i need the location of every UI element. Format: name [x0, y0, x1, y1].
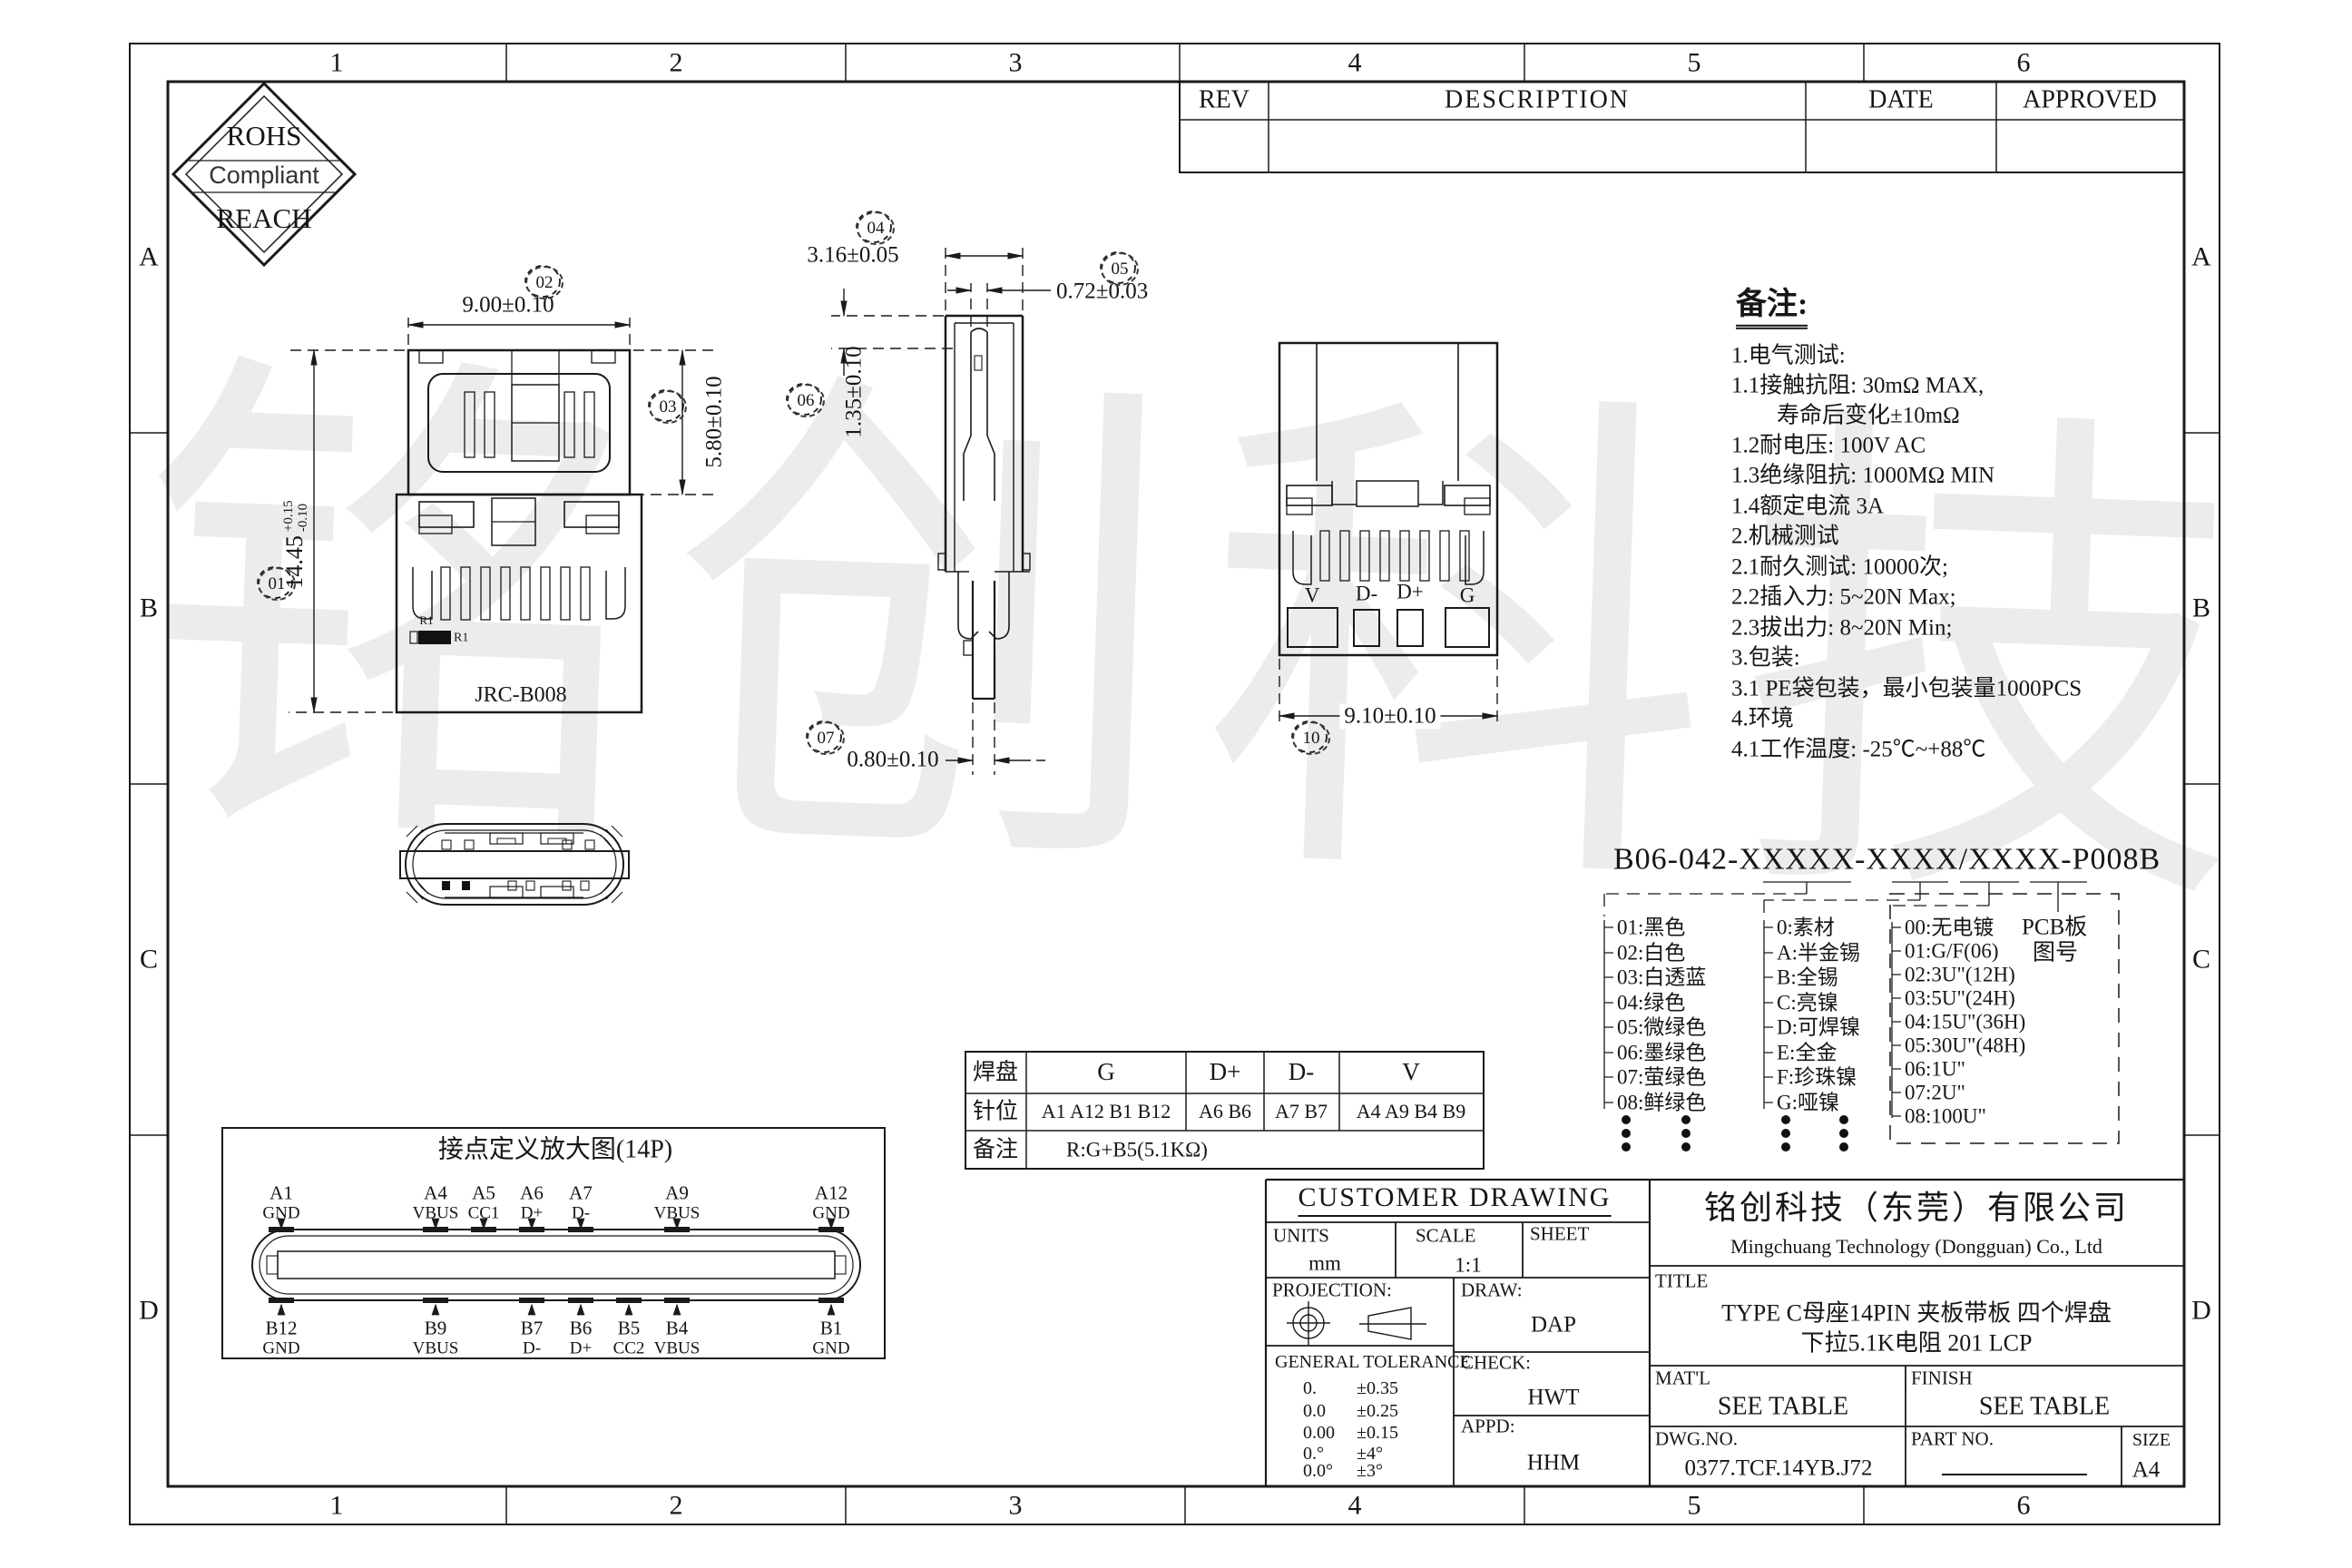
- pin-id: B4: [666, 1318, 689, 1338]
- pad-table-dplus: D+: [1210, 1059, 1241, 1086]
- note-line: 寿命后变化±10mΩ: [1777, 403, 1960, 428]
- rohs-reach-label: REACH: [216, 203, 311, 234]
- balloon-01: 01: [258, 567, 296, 601]
- tolerance-value: 0.0°: [1303, 1461, 1333, 1481]
- border-col-4-bottom: 4: [1348, 1491, 1362, 1521]
- pad-d-minus: [1354, 610, 1379, 646]
- border-col-4-top: 4: [1348, 48, 1362, 78]
- balloon-05: 05: [1101, 252, 1139, 286]
- tolerance-tol: ±0.25: [1357, 1401, 1398, 1421]
- plating-option: F:珍珠镍: [1777, 1065, 1857, 1088]
- approved-header: APPROVED: [2023, 87, 2157, 115]
- pad-label-d-minus: D-: [1356, 582, 1377, 604]
- note-line: 2.3拔出力: 8~20N Min;: [1731, 615, 1952, 641]
- pin-id: B12: [265, 1318, 297, 1338]
- customer-drawing-heading: CUSTOMER DRAWING: [1298, 1182, 1612, 1217]
- projection-label: PROJECTION:: [1272, 1279, 1392, 1300]
- border-col-5-top: 5: [1688, 48, 1701, 78]
- thickness-option: 03:5U"(24H): [1905, 986, 2015, 1009]
- thickness-option: 07:2U": [1905, 1081, 1965, 1103]
- pad-table-g-pins: A1 A12 B1 B12: [1042, 1101, 1171, 1122]
- dim-front-shell: 5.80±0.10: [701, 376, 727, 467]
- pad-table-row3-head: 备注: [973, 1137, 1018, 1162]
- pad-label-v: V: [1305, 583, 1320, 606]
- pin-id: A9: [665, 1182, 689, 1203]
- title-line1: TYPE C母座14PIN 夹板带板 四个焊盘: [1721, 1301, 2112, 1328]
- color-option: 08:鲜绿色: [1617, 1091, 1706, 1113]
- pin-sig: VBUS: [413, 1340, 459, 1359]
- size-label: SIZE: [2132, 1430, 2171, 1450]
- note-line: 4.1工作温度: -25℃~+88℃: [1731, 737, 1985, 762]
- balloon-07: 07: [807, 721, 845, 755]
- note-line: 3.包装:: [1731, 645, 1800, 671]
- tolerance-value: 0.: [1303, 1378, 1317, 1398]
- pcb-label-line2: 图号: [2033, 940, 2078, 965]
- pin-sig: VBUS: [654, 1205, 701, 1224]
- check-label: CHECK:: [1461, 1352, 1531, 1373]
- dim-back-width: 9.10±0.10: [1339, 703, 1440, 729]
- note-line: 2.2插入力: 5~20N Max;: [1731, 584, 1956, 610]
- balloon-circles: [258, 211, 1327, 752]
- pin-sig: GND: [262, 1340, 299, 1359]
- border-row-b-left: B: [140, 593, 158, 623]
- pin-id: A7: [569, 1182, 593, 1203]
- part-number-code: B06-042-XXXXX-XXXX/XXXX-P008B: [1613, 842, 2161, 876]
- plating-option: G:哑镍: [1777, 1091, 1839, 1113]
- company-name-cn: 铭创科技（东莞）有限公司: [1704, 1191, 2129, 1227]
- plating-option: C:亮镍: [1777, 991, 1838, 1014]
- color-option: 01:黑色: [1617, 916, 1685, 938]
- border-col-1-bottom: 1: [330, 1491, 344, 1521]
- pin-id: A5: [472, 1182, 495, 1203]
- pin-sig: D+: [521, 1205, 543, 1224]
- pad-table-row2-head: 针位: [973, 1099, 1018, 1124]
- date-header: DATE: [1868, 87, 1934, 115]
- pin-sig: D-: [523, 1340, 541, 1359]
- border-col-2-top: 2: [670, 48, 683, 78]
- dim-front-height-plus: +0.15: [282, 500, 297, 532]
- front-dimensions: [289, 318, 719, 712]
- pin-id: A1: [269, 1182, 293, 1203]
- side-dimensions: [831, 247, 1051, 775]
- dim-side-top: 3.16±0.05: [807, 242, 898, 268]
- border-col-6-bottom: 6: [2017, 1491, 2031, 1521]
- pin-sig: D+: [570, 1340, 592, 1359]
- thickness-option: 08:100U": [1905, 1104, 1986, 1127]
- balloon-04: 04: [857, 211, 895, 245]
- border-row-c-right: C: [2192, 945, 2210, 975]
- thickness-option: 05:30U"(48H): [1905, 1034, 2025, 1056]
- thickness-option: 04:15U"(36H): [1905, 1010, 2025, 1033]
- border-col-3-top: 3: [1009, 48, 1023, 78]
- border-row-a-left: A: [139, 242, 159, 272]
- appd-value: HHM: [1527, 1450, 1580, 1475]
- draw-value: DAP: [1531, 1312, 1576, 1338]
- title-line2: 下拉5.1K电阻 201 LCP: [1801, 1331, 2033, 1357]
- color-option: 05:微绿色: [1617, 1015, 1706, 1038]
- dim-side-pin: 0.72±0.03: [1056, 279, 1148, 304]
- description-header: DESCRIPTION: [1445, 87, 1630, 115]
- pad-table-dminus: D-: [1289, 1059, 1315, 1086]
- pin-sig: GND: [262, 1205, 299, 1224]
- check-value: HWT: [1528, 1385, 1580, 1410]
- thickness-option: 01:G/F(06): [1905, 939, 1999, 962]
- pin-id: B7: [521, 1318, 544, 1338]
- note-line: 2.1耐久测试: 10000次;: [1731, 554, 1948, 580]
- pin-sig: VBUS: [654, 1340, 701, 1359]
- scale-label: SCALE: [1416, 1225, 1476, 1246]
- company-name-en: Mingchuang Technology (Dongguan) Co., Lt…: [1730, 1236, 2102, 1258]
- pcb-label-line1: PCB板: [2022, 915, 2087, 940]
- plating-option: A:半金锡: [1777, 941, 1860, 964]
- appd-label: APPD:: [1461, 1416, 1515, 1436]
- tolerance-tol: ±0.15: [1357, 1423, 1398, 1443]
- pad-label-g: G: [1460, 583, 1475, 606]
- general-tolerance-title: GENERAL TOLERANCE: [1275, 1352, 1471, 1372]
- pad-g: [1445, 608, 1489, 647]
- pin-sig: D-: [572, 1205, 590, 1224]
- plating-option: E:全金: [1777, 1041, 1837, 1063]
- border-row-c-left: C: [140, 945, 158, 975]
- finish-value: SEE TABLE: [1979, 1394, 2110, 1422]
- thickness-option: 06:1U": [1905, 1057, 1965, 1080]
- pin-sig: CC2: [613, 1340, 645, 1359]
- color-option: 06:墨绿色: [1617, 1041, 1706, 1063]
- color-option: 07:萤绿色: [1617, 1065, 1706, 1088]
- pin-diagram-title: 接点定义放大图(14P): [438, 1137, 672, 1165]
- rohs-compliant-label: Compliant: [209, 162, 319, 190]
- note-line: 2.机械测试: [1731, 524, 1839, 549]
- oval-face-view: [400, 824, 629, 905]
- size-value: A4: [2132, 1457, 2161, 1483]
- color-option: 04:绿色: [1617, 991, 1685, 1014]
- r1-label: R1: [454, 631, 468, 644]
- border-col-1-top: 1: [330, 48, 344, 78]
- note-line: 1.2耐电压: 100V AC: [1731, 433, 1926, 458]
- border-col-6-top: 6: [2017, 48, 2031, 78]
- pin-id: B6: [570, 1318, 593, 1338]
- balloon-02: 02: [525, 266, 563, 299]
- back-view: [1279, 343, 1497, 655]
- border-row-b-right: B: [2192, 593, 2210, 623]
- tolerance-tol: ±3°: [1357, 1461, 1383, 1481]
- note-line: 3.1 PE袋包装，最小包装量1000PCS: [1731, 676, 2082, 701]
- dwg-no-label: DWG.NO.: [1655, 1428, 1738, 1449]
- note-line: 1.1接触抗阻: 30mΩ MAX,: [1731, 373, 1984, 398]
- border-row-d-right: D: [2191, 1296, 2211, 1326]
- color-option: 02:白色: [1617, 941, 1685, 964]
- border-row-d-left: D: [139, 1296, 159, 1326]
- title-label: TITLE: [1655, 1270, 1708, 1291]
- rev-header: REV: [1199, 87, 1249, 115]
- note-line: 1.电气测试:: [1731, 343, 1846, 368]
- tolerance-value: 0.00: [1303, 1423, 1335, 1443]
- border-col-3-bottom: 3: [1009, 1491, 1023, 1521]
- pad-table-dminus-pins: A7 B7: [1275, 1101, 1328, 1122]
- pin-sig: GND: [812, 1340, 849, 1359]
- thickness-option: 02:3U"(12H): [1905, 963, 2015, 985]
- scale-value: 1:1: [1455, 1253, 1481, 1276]
- matl-value: SEE TABLE: [1718, 1394, 1848, 1422]
- front-view: [397, 350, 642, 712]
- plating-option: D:可焊镍: [1777, 1015, 1860, 1038]
- tolerance-tol: ±0.35: [1357, 1378, 1398, 1398]
- pad-table-remark: R:G+B5(5.1KΩ): [1066, 1138, 1208, 1161]
- notes-title: 备注:: [1736, 288, 1808, 329]
- pin-id: B5: [618, 1318, 641, 1338]
- pin-sig: CC1: [468, 1205, 500, 1224]
- pad-table-g: G: [1097, 1059, 1115, 1086]
- pad-v: [1288, 608, 1338, 647]
- pad-table-dplus-pins: A6 B6: [1199, 1101, 1251, 1122]
- pin-id: A12: [815, 1182, 848, 1203]
- side-view: [938, 316, 1030, 699]
- matl-label: MAT'L: [1655, 1367, 1710, 1388]
- border-row-a-right: A: [2191, 242, 2211, 272]
- balloon-10: 10: [1292, 721, 1330, 755]
- color-option: 03:白透蓝: [1617, 965, 1706, 988]
- dim-side-tail: 0.80±0.10: [847, 747, 938, 772]
- pin-id: A6: [520, 1182, 544, 1203]
- r1-small-label: R1: [419, 614, 433, 627]
- note-line: 1.4额定电流 3A: [1731, 494, 1884, 519]
- r1-component: [418, 631, 451, 644]
- sheet-label: SHEET: [1530, 1223, 1589, 1244]
- pin-id: B1: [820, 1318, 843, 1338]
- border-col-5-bottom: 5: [1688, 1491, 1701, 1521]
- units-label: UNITS: [1273, 1225, 1329, 1246]
- rohs-label: ROHS: [227, 121, 302, 152]
- front-body-label: JRC-B008: [475, 683, 566, 707]
- border-col-2-bottom: 2: [670, 1491, 683, 1521]
- tolerance-value: 0.0: [1303, 1401, 1326, 1421]
- note-line: 4.环境: [1731, 706, 1794, 731]
- dwg-no-value: 0377.TCF.14YB.J72: [1684, 1455, 1872, 1481]
- units-value: mm: [1308, 1251, 1341, 1274]
- pin-sig: VBUS: [413, 1205, 459, 1224]
- pad-label-d-plus: D+: [1396, 580, 1424, 603]
- part-no-label: PART NO.: [1911, 1428, 1994, 1449]
- dim-side-depth: 1.35±0.10: [841, 346, 867, 437]
- pad-table-row1-head: 焊盘: [973, 1060, 1018, 1085]
- plating-option: B:全锡: [1777, 965, 1838, 988]
- pin-id: A4: [424, 1182, 447, 1203]
- pin-id: B9: [425, 1318, 447, 1338]
- draw-label: DRAW:: [1461, 1279, 1523, 1300]
- pad-table-v: V: [1402, 1059, 1420, 1086]
- drawing-sheet: 铭创科技: [0, 0, 2352, 1568]
- thickness-option: 00:无电镀: [1905, 916, 1994, 938]
- balloon-06: 06: [787, 384, 825, 417]
- finish-label: FINISH: [1911, 1367, 1973, 1388]
- pad-d-plus: [1397, 610, 1423, 646]
- dim-front-height-minus: -0.10: [297, 500, 311, 532]
- balloon-03: 03: [649, 390, 687, 424]
- pad-table-v-pins: A4 A9 B4 B9: [1357, 1101, 1465, 1122]
- pin-sig: GND: [812, 1205, 849, 1224]
- plating-option: 0:素材: [1777, 916, 1835, 938]
- note-line: 1.3绝缘阻抗: 1000MΩ MIN: [1731, 463, 1994, 488]
